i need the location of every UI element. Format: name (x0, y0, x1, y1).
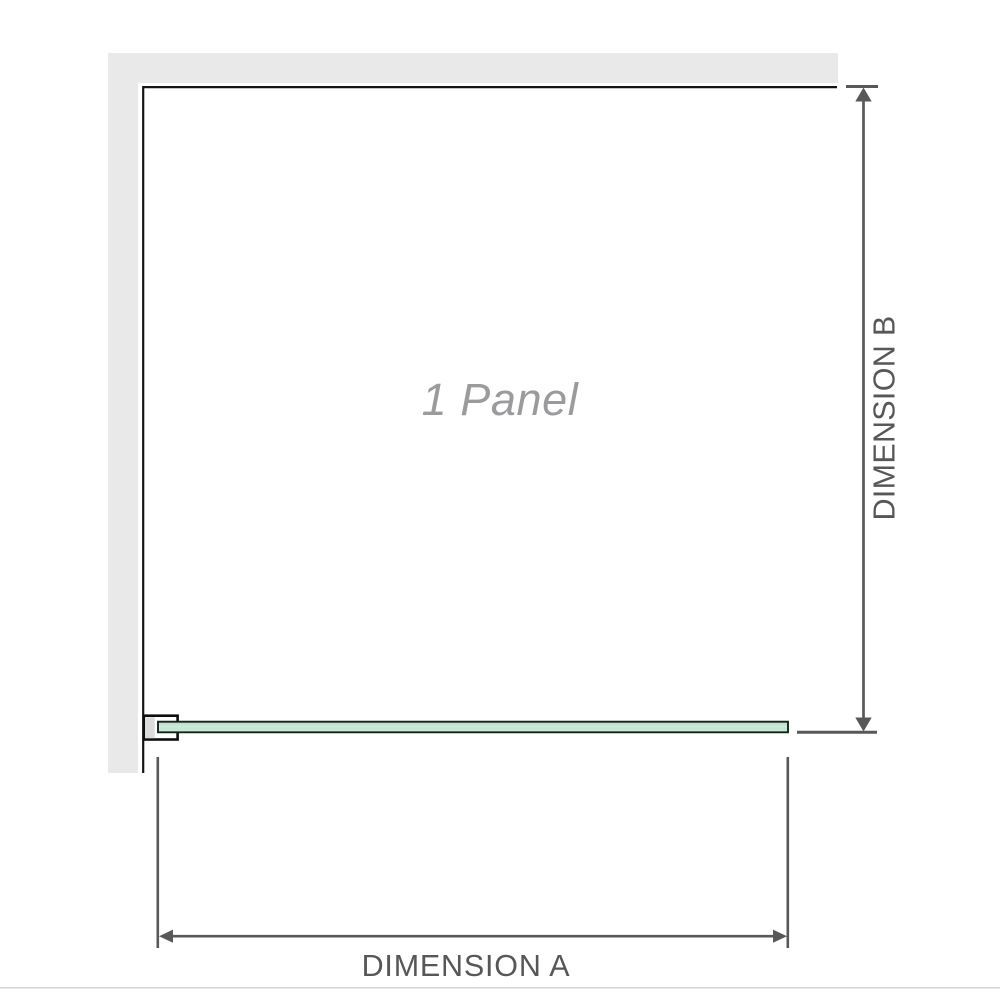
svg-text:1 Panel: 1 Panel (422, 374, 580, 425)
svg-text:DIMENSION B: DIMENSION B (868, 316, 902, 521)
svg-text:DIMENSION A: DIMENSION A (362, 949, 571, 983)
